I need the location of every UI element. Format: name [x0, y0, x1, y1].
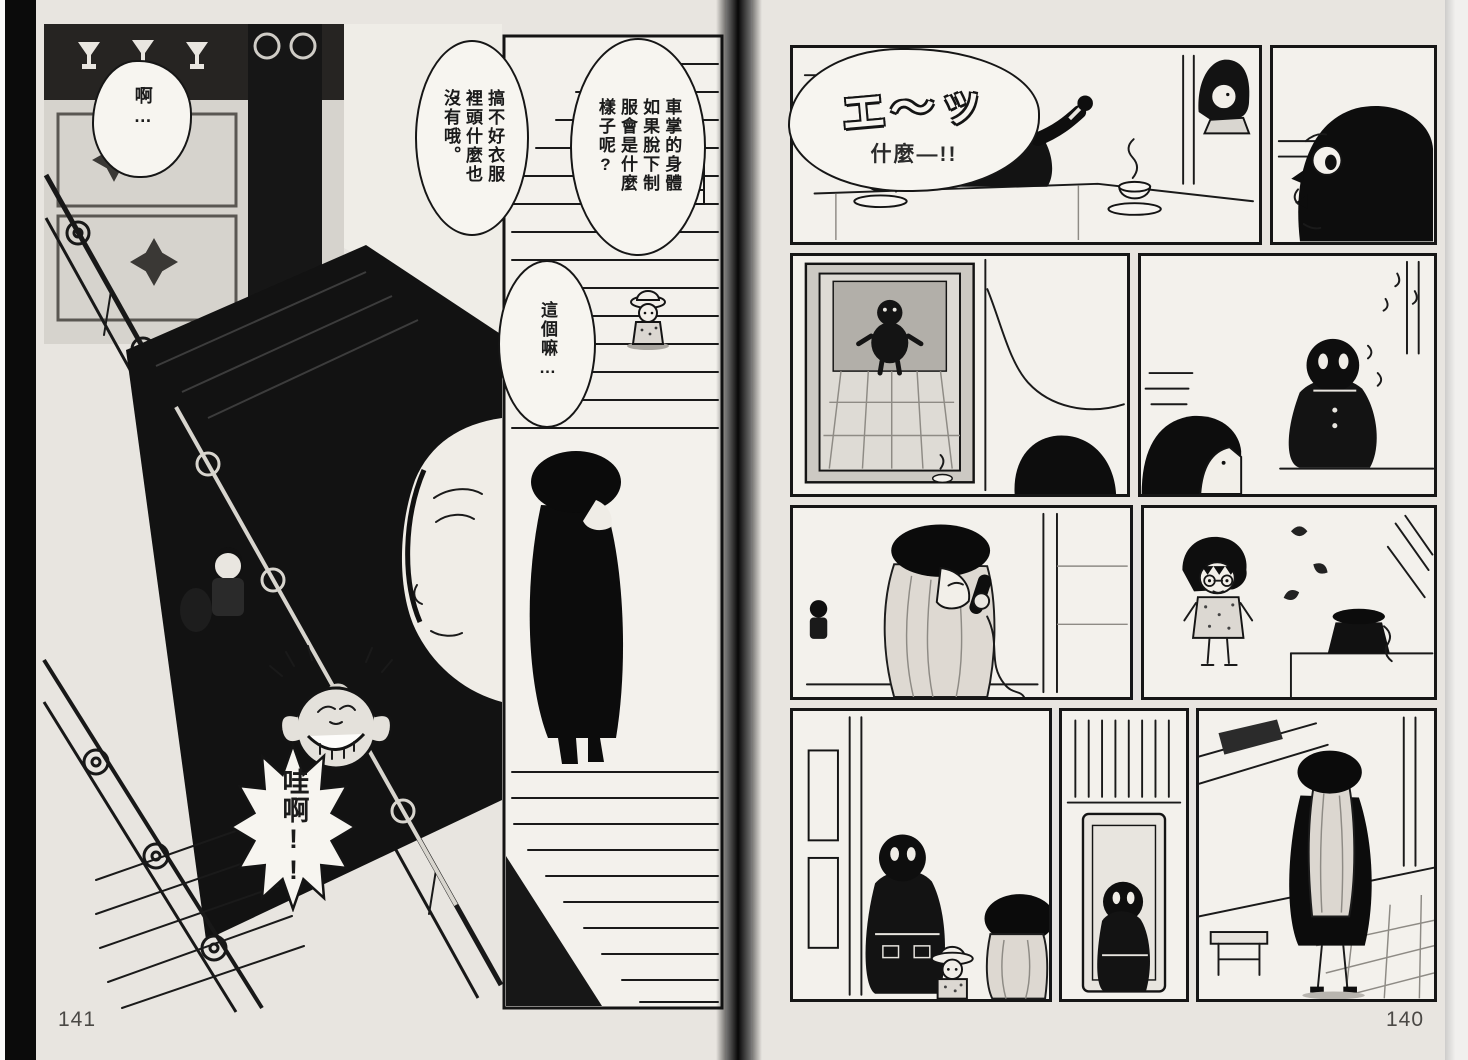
- tetsuro-head-art: [1014, 435, 1116, 494]
- corridor-maetel-art: [1199, 711, 1434, 999]
- manga-spread: 啊… 搞不好衣服裡頭什麼也沒有哦。 車掌的身體如果脫下制服會是什麼樣子呢? 這個…: [0, 0, 1468, 1060]
- conductor-peeking-art: [866, 834, 945, 993]
- tetsuro-reaction-art: [1273, 48, 1434, 242]
- scan-edge-black: [5, 0, 36, 1060]
- maetel-phone-art: [793, 508, 1130, 697]
- blonde-woman-art: [1198, 60, 1249, 134]
- hair-art: [1298, 106, 1433, 241]
- sfx-waa-text: 哇啊!!: [275, 768, 310, 896]
- panel-tatami-room: 不必了，我討厭洗澡…我不要洗澡…反正我不洗就是了: [790, 253, 1130, 497]
- speech-bubble-ah: 啊…: [92, 60, 192, 178]
- page-number-right: 140: [1386, 1008, 1424, 1032]
- bathroom-door-art: [1062, 711, 1186, 999]
- speech-bubble-well: 這個嘛…: [498, 260, 596, 428]
- maetel-walking-art: [1289, 751, 1371, 999]
- speech-bubble-conductor-body: 車掌的身體如果脫下制服會是什麼樣子呢?: [570, 38, 706, 256]
- panel-maetel-phone: 是…找我嗎?在樓下大廳見面…好…: [790, 505, 1133, 700]
- maetel-silhouette-art: [530, 451, 623, 764]
- teacup-steam-art: [1108, 139, 1160, 215]
- sfx-cloud: エ〜ッ 什麼—!!: [788, 48, 1040, 192]
- panel-conductor-excuse: 偶爾洗一次不錯哦，蠻舒服的。 我、我…我不想洗澡，你們先請便吧。: [1138, 253, 1437, 497]
- sfx-burst-waa: 哇啊!!: [228, 742, 358, 912]
- maetel-hat-art: [985, 894, 1049, 999]
- bubble-clothes-text: 搞不好衣服裡頭什麼也沒有哦。: [439, 89, 505, 187]
- conductor-at-door-art: [1097, 882, 1150, 992]
- panel-bathroom-door: 一個人… 浴室: [1059, 708, 1189, 1002]
- page-number-left: 141: [58, 1008, 96, 1032]
- tatami-room-art: [793, 256, 1127, 494]
- tetsuro-profile-art: [1142, 416, 1241, 494]
- page-right: 客人，用餐前請先洗澡。: [752, 0, 1445, 1060]
- panel-tetsuro-reaction: 客人，用餐前請先洗澡。: [1270, 45, 1437, 245]
- falling-leaves-art: [1282, 526, 1330, 602]
- bubble-well-text: 這個嘛…: [536, 301, 558, 387]
- sfx-kana-text: エ〜ッ: [838, 66, 990, 143]
- panel-doorway-conductor: 只剩下我一個人的話，就勉強洗一下吧… 我們先去喝杯咖啡逛逛再回來，你慢慢洗吧。: [790, 708, 1052, 1002]
- panel-corridor-maetel: 我跟鐵郎到大廳去，你一個人先洗澡吧。: [1196, 708, 1437, 1002]
- tetsuro-standing-art: [1182, 537, 1252, 665]
- doorway-conductor-art: [793, 711, 1049, 999]
- conductor-excuse-art: [1141, 256, 1434, 494]
- page-gutter: [716, 0, 762, 1060]
- small-tetsuro-art: [810, 600, 827, 639]
- telephone-art: [1328, 609, 1392, 661]
- page-left: 啊… 搞不好衣服裡頭什麼也沒有哦。 車掌的身體如果脫下制服會是什麼樣子呢? 這個…: [36, 0, 726, 1060]
- side-table-art: [1211, 932, 1268, 975]
- tetsuro-phone-news-art: [1144, 508, 1434, 697]
- bubble-ah-text: 啊…: [130, 86, 153, 152]
- maetel-on-phone-art: [885, 524, 1024, 697]
- panel-tetsuro-phone-news: 電話?: [1141, 505, 1437, 700]
- bubble-conductor-body-text: 車掌的身體如果脫下制服會是什麼樣子呢?: [594, 98, 682, 196]
- sfx-translation-text: 什麼—!!: [871, 138, 958, 168]
- conductor-sitting-art: [1289, 339, 1381, 468]
- speech-bubble-clothes: 搞不好衣服裡頭什麼也沒有哦。: [415, 40, 529, 236]
